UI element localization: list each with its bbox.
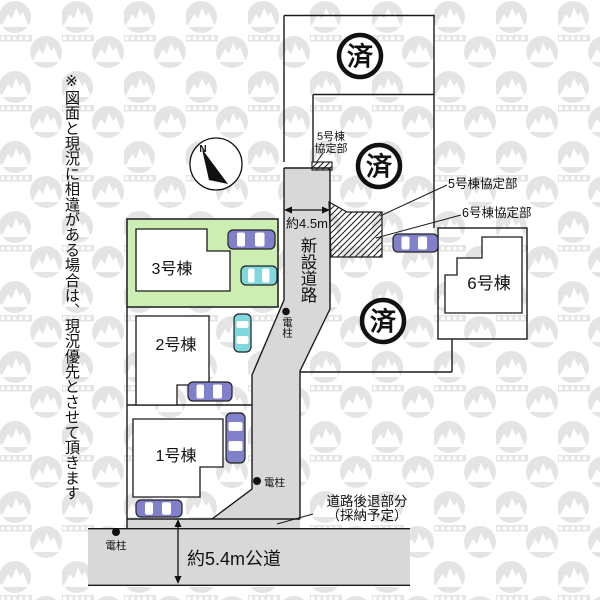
car-window — [248, 269, 255, 283]
disclaimer-text: ※図面と現況に相違がある場合は、現況優先とさせて頂きます — [63, 72, 81, 501]
lot-2-label: 2号棟 — [156, 336, 197, 354]
car-window — [262, 269, 270, 283]
utility-pole-label: 電柱 — [106, 539, 127, 552]
compass-circle — [190, 138, 242, 190]
sold-badge-text: 済 — [370, 307, 397, 337]
car-icon — [393, 234, 438, 252]
car-icon — [136, 500, 182, 517]
agreement-corner-label-line2: 協定部 — [315, 141, 348, 155]
car-window — [418, 237, 427, 250]
lot-1-label: 1号棟 — [156, 447, 197, 465]
car-window — [229, 422, 243, 431]
car-window — [237, 321, 249, 328]
new-road-width-label: 約4.5m — [286, 216, 328, 231]
sold-badge: 済 — [362, 300, 404, 342]
road-setback-strip — [127, 519, 300, 529]
new-road-label: 新設道路 — [298, 237, 317, 304]
utility-pole-dot — [253, 477, 261, 485]
car-window — [237, 233, 245, 247]
lot-6-label: 6号棟 — [467, 274, 510, 293]
agreement-corner-label-line1: 5号棟 — [317, 129, 345, 143]
car-window — [255, 233, 265, 247]
car-window — [197, 385, 205, 399]
car-icon — [188, 382, 232, 401]
car-window — [213, 385, 222, 399]
sold-badge: 済 — [339, 35, 381, 77]
utility-pole-dot — [282, 308, 290, 316]
car-icon — [226, 413, 245, 463]
car-icon — [234, 314, 251, 352]
setback-label-line1: 道路後退部分 — [327, 494, 408, 509]
sold-badge-text: 済 — [366, 152, 393, 182]
site-plan: 済 済 済 3号棟 2号棟 1号棟 6号棟 新設道路 約4.5m 約5.4m公道… — [0, 0, 600, 600]
agreement-lot6-label: 6号棟協定部 — [462, 205, 531, 220]
compass-north-label: N — [199, 144, 206, 155]
car-window — [162, 502, 171, 515]
car-icon — [241, 266, 277, 285]
setback-label-line2: （採納予定） — [327, 508, 408, 523]
agreement-lot5-label: 5号棟協定部 — [448, 176, 517, 191]
sold-badge-text: 済 — [347, 42, 374, 72]
north-compass-icon: N — [190, 138, 242, 190]
car-window — [145, 502, 153, 515]
public-road-label: 約5.4m公道 — [187, 549, 281, 569]
car-icon — [228, 230, 275, 249]
utility-pole-dot — [112, 528, 120, 536]
car-window — [237, 336, 249, 344]
sold-badge: 済 — [358, 145, 400, 187]
lot-3-label: 3号棟 — [152, 260, 193, 278]
utility-pole-label: 電柱 — [281, 317, 293, 339]
car-window — [229, 441, 243, 451]
site-plan-drawing: 済 済 済 3号棟 2号棟 1号棟 6号棟 新設道路 約4.5m 約5.4m公道… — [0, 0, 600, 600]
car-window — [402, 237, 410, 250]
utility-pole-label: 電柱 — [264, 476, 285, 489]
agreement-area-lot5-hatch — [312, 162, 332, 170]
